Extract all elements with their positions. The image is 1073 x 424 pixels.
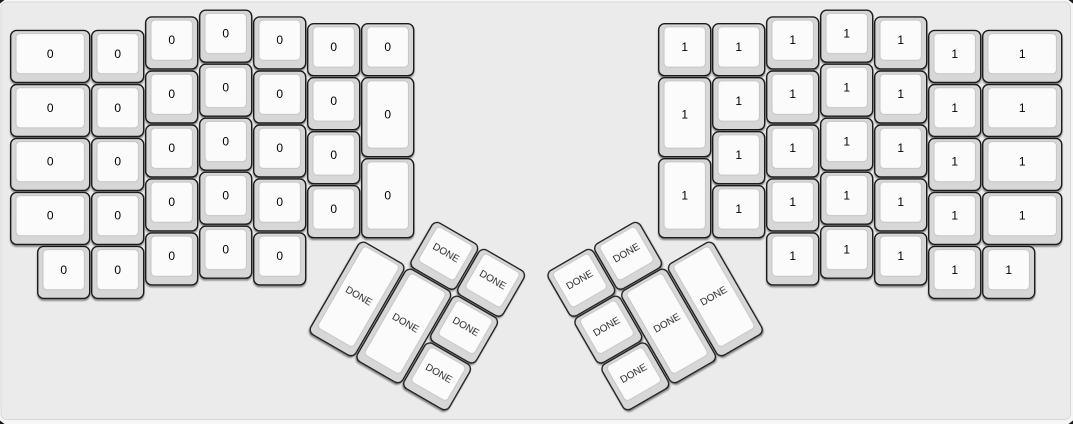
svg-text:1: 1 [789,195,796,209]
svg-text:1: 1 [843,189,850,203]
svg-text:1: 1 [897,195,904,209]
svg-text:1: 1 [789,33,796,47]
svg-text:0: 0 [60,263,67,277]
svg-text:0: 0 [276,249,283,263]
svg-text:1: 1 [1005,263,1012,277]
svg-text:0: 0 [384,189,391,203]
svg-text:0: 0 [114,47,121,61]
svg-text:0: 0 [47,209,54,223]
svg-text:0: 0 [47,155,54,169]
svg-text:1: 1 [681,108,688,122]
svg-text:0: 0 [330,202,337,216]
svg-text:1: 1 [735,202,742,216]
svg-text:0: 0 [276,141,283,155]
svg-text:1: 1 [1019,101,1026,115]
svg-text:0: 0 [276,195,283,209]
svg-text:1: 1 [681,40,688,54]
svg-text:0: 0 [114,155,121,169]
svg-text:1: 1 [681,189,688,203]
svg-text:0: 0 [384,40,391,54]
svg-text:0: 0 [168,249,175,263]
svg-text:1: 1 [843,135,850,149]
svg-text:1: 1 [789,141,796,155]
svg-text:1: 1 [789,87,796,101]
svg-text:0: 0 [114,101,121,115]
svg-text:1: 1 [735,40,742,54]
svg-text:1: 1 [735,94,742,108]
svg-text:0: 0 [276,33,283,47]
svg-text:1: 1 [843,81,850,95]
svg-text:0: 0 [222,243,229,257]
svg-text:1: 1 [897,33,904,47]
svg-text:1: 1 [951,101,958,115]
svg-text:0: 0 [330,40,337,54]
svg-text:1: 1 [789,249,796,263]
svg-text:1: 1 [951,47,958,61]
svg-text:1: 1 [951,263,958,277]
svg-text:0: 0 [114,263,121,277]
svg-text:0: 0 [114,209,121,223]
svg-text:1: 1 [951,209,958,223]
svg-text:0: 0 [330,94,337,108]
svg-text:1: 1 [843,243,850,257]
svg-text:1: 1 [897,249,904,263]
svg-text:0: 0 [47,47,54,61]
svg-text:0: 0 [384,108,391,122]
svg-text:0: 0 [222,135,229,149]
svg-text:1: 1 [1019,209,1026,223]
svg-text:0: 0 [168,87,175,101]
svg-text:1: 1 [897,141,904,155]
svg-text:0: 0 [222,81,229,95]
svg-text:1: 1 [897,87,904,101]
svg-text:1: 1 [843,27,850,41]
svg-text:0: 0 [276,87,283,101]
svg-text:1: 1 [1019,47,1026,61]
svg-text:0: 0 [168,33,175,47]
svg-text:0: 0 [168,195,175,209]
svg-text:0: 0 [168,141,175,155]
svg-text:0: 0 [222,189,229,203]
svg-text:0: 0 [222,27,229,41]
svg-text:0: 0 [330,148,337,162]
svg-text:1: 1 [735,148,742,162]
svg-text:1: 1 [951,155,958,169]
svg-text:1: 1 [1019,155,1026,169]
svg-text:0: 0 [47,101,54,115]
